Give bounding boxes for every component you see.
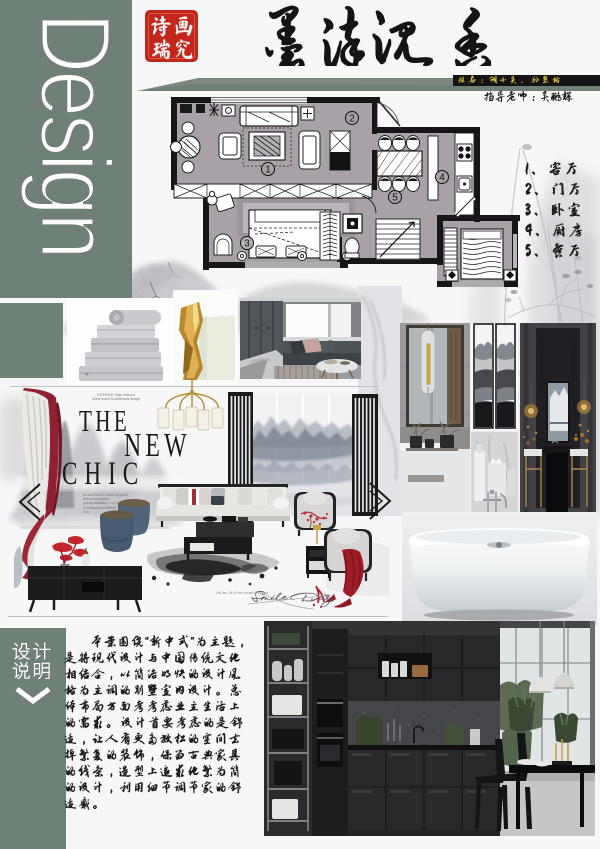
svg-text:5: 5 <box>392 193 398 204</box>
svg-text:3: 3 <box>244 239 250 250</box>
svg-text:2: 2 <box>349 114 355 125</box>
svg-text:4: 4 <box>439 173 445 184</box>
svg-text:1: 1 <box>265 165 271 176</box>
